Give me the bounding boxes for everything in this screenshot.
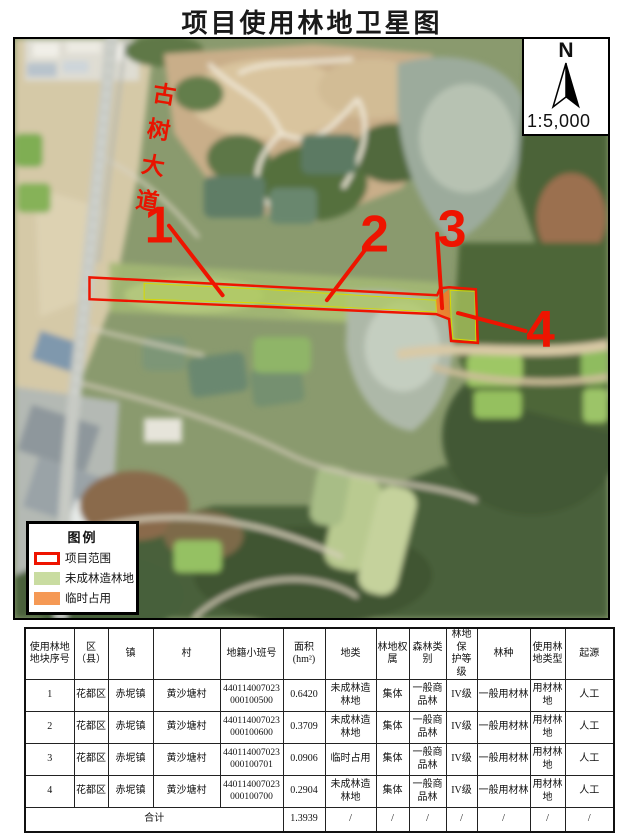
table-total-row: 合计 1.3939 / / / / / / /	[25, 808, 614, 832]
table-cell: 赤坭镇	[108, 680, 153, 712]
total-empty-cell: /	[530, 808, 565, 832]
marker-2-label: 2	[360, 205, 389, 263]
table-cell: 用材林地	[530, 744, 565, 776]
table-cell: 黄沙塘村	[153, 680, 220, 712]
total-empty-cell: /	[409, 808, 446, 832]
table-cell: 0.2904	[283, 776, 325, 808]
table-cell: 未成林造林地	[325, 712, 376, 744]
map-legend: 图例 项目范围 未成林造林地 临时占用	[26, 521, 139, 615]
table-cell: IV级	[446, 776, 477, 808]
table-cell: 花都区	[74, 776, 108, 808]
table-cell: 一般用材林	[477, 712, 530, 744]
table-cell: 未成林造林地	[325, 776, 376, 808]
compass-scale-box: N 1:5,000	[522, 39, 608, 136]
table-cell: 一般商品林	[409, 776, 446, 808]
table-cell: 0.6420	[283, 680, 325, 712]
table-row: 3 花都区 赤坭镇 黄沙塘村 440114007023000100701 0.0…	[25, 744, 614, 776]
legend-item: 项目范围	[34, 550, 131, 566]
table-cell: 赤坭镇	[108, 712, 153, 744]
table-cell: 集体	[376, 776, 409, 808]
table-cell: 3	[25, 744, 74, 776]
table-cell: 黄沙塘村	[153, 776, 220, 808]
legend-swatch-0	[34, 552, 60, 565]
header-cell: 林地权 属	[376, 628, 409, 680]
table-cell: 人工	[565, 712, 614, 744]
table-cell: 440114007023000100500	[220, 680, 283, 712]
table-cell: 一般用材林	[477, 744, 530, 776]
legend-swatch-1	[34, 572, 60, 585]
table-cell: 用材林地	[530, 776, 565, 808]
total-empty-cell: /	[477, 808, 530, 832]
page-title: 项目使用林地卫星图	[0, 0, 624, 35]
satellite-map: 1 2 3 4 古树大道 N 1:5,000 图例 项目范围 未成林造林地 临时…	[13, 37, 610, 620]
table-cell: IV级	[446, 744, 477, 776]
table-cell: 人工	[565, 680, 614, 712]
header-cell: 森林类 别	[409, 628, 446, 680]
total-empty-cell: /	[565, 808, 614, 832]
table-cell: 一般商品林	[409, 712, 446, 744]
header-cell: 林地保 护等级	[446, 628, 477, 680]
north-label: N	[558, 40, 573, 61]
table-cell: 花都区	[74, 680, 108, 712]
table-row: 4 花都区 赤坭镇 黄沙塘村 440114007023000100700 0.2…	[25, 776, 614, 808]
header-cell: 使用林地 地块序号	[25, 628, 74, 680]
table-cell: 440114007023000100600	[220, 712, 283, 744]
legend-item: 未成林造林地	[34, 570, 131, 586]
header-cell: 起源	[565, 628, 614, 680]
land-use-table: 使用林地 地块序号 区 （县） 镇 村 地籍小班号 面积 (hm²) 地类 林地…	[24, 627, 615, 833]
table-row: 1 花都区 赤坭镇 黄沙塘村 440114007023000100500 0.6…	[25, 680, 614, 712]
total-empty-cell: /	[325, 808, 376, 832]
header-cell: 地类	[325, 628, 376, 680]
table-cell: 4	[25, 776, 74, 808]
north-arrow-icon	[548, 61, 584, 109]
total-empty-cell: /	[446, 808, 477, 832]
legend-item-label: 未成林造林地	[65, 570, 134, 586]
marker-4-label: 4	[526, 300, 555, 358]
header-cell: 使用林 地类型	[530, 628, 565, 680]
table-cell: 0.3709	[283, 712, 325, 744]
legend-item: 临时占用	[34, 590, 131, 606]
table-cell: 赤坭镇	[108, 776, 153, 808]
table-cell: 黄沙塘村	[153, 712, 220, 744]
scale-label: 1:5,000	[524, 111, 591, 132]
table-cell: 440114007023000100700	[220, 776, 283, 808]
table-cell: 花都区	[74, 744, 108, 776]
header-cell: 地籍小班号	[220, 628, 283, 680]
table-row: 2 花都区 赤坭镇 黄沙塘村 440114007023000100600 0.3…	[25, 712, 614, 744]
total-area-cell: 1.3939	[283, 808, 325, 832]
table-header-row: 使用林地 地块序号 区 （县） 镇 村 地籍小班号 面积 (hm²) 地类 林地…	[25, 628, 614, 680]
table-cell: IV级	[446, 680, 477, 712]
table-cell: 集体	[376, 680, 409, 712]
table-cell: 未成林造林地	[325, 680, 376, 712]
legend-item-label: 临时占用	[65, 590, 111, 606]
table-cell: 人工	[565, 776, 614, 808]
table-cell: 临时占用	[325, 744, 376, 776]
table-cell: 2	[25, 712, 74, 744]
table-cell: IV级	[446, 712, 477, 744]
table-cell: 一般用材林	[477, 776, 530, 808]
header-cell: 面积 (hm²)	[283, 628, 325, 680]
legend-item-label: 项目范围	[65, 550, 111, 566]
table-cell: 一般用材林	[477, 680, 530, 712]
header-cell: 区 （县）	[74, 628, 108, 680]
marker-3-label: 3	[438, 200, 467, 258]
total-empty-cell: /	[376, 808, 409, 832]
table-cell: 1	[25, 680, 74, 712]
header-cell: 林种	[477, 628, 530, 680]
table-cell: 0.0906	[283, 744, 325, 776]
header-cell: 村	[153, 628, 220, 680]
header-cell: 镇	[108, 628, 153, 680]
legend-swatch-2	[34, 592, 60, 605]
table-cell: 集体	[376, 712, 409, 744]
table-cell: 一般商品林	[409, 680, 446, 712]
table-cell: 用材林地	[530, 680, 565, 712]
table-cell: 用材林地	[530, 712, 565, 744]
legend-title: 图例	[34, 527, 131, 546]
table-cell: 赤坭镇	[108, 744, 153, 776]
table-cell: 440114007023000100701	[220, 744, 283, 776]
table-cell: 黄沙塘村	[153, 744, 220, 776]
table-cell: 人工	[565, 744, 614, 776]
table-cell: 花都区	[74, 712, 108, 744]
table-cell: 集体	[376, 744, 409, 776]
table-cell: 一般商品林	[409, 744, 446, 776]
total-label-cell: 合计	[25, 808, 283, 832]
